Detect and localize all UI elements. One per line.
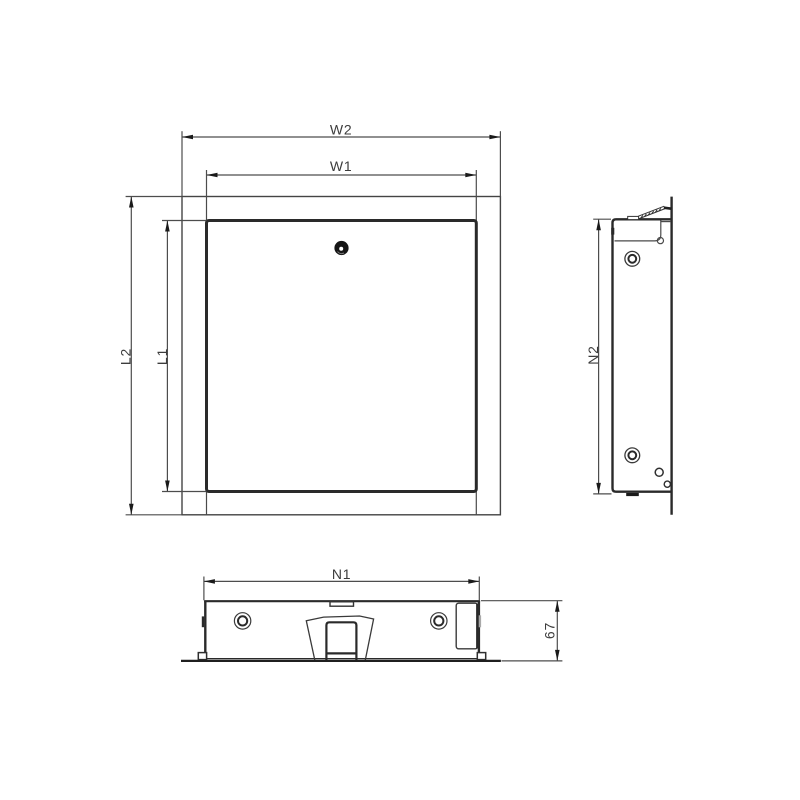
svg-text:W2: W2 — [330, 122, 353, 138]
svg-text:L2: L2 — [118, 348, 134, 365]
svg-text:N2: N2 — [585, 345, 601, 365]
svg-text:67: 67 — [542, 622, 558, 639]
svg-text:N1: N1 — [332, 566, 352, 582]
svg-text:W1: W1 — [330, 158, 353, 174]
svg-text:L1: L1 — [154, 348, 170, 365]
